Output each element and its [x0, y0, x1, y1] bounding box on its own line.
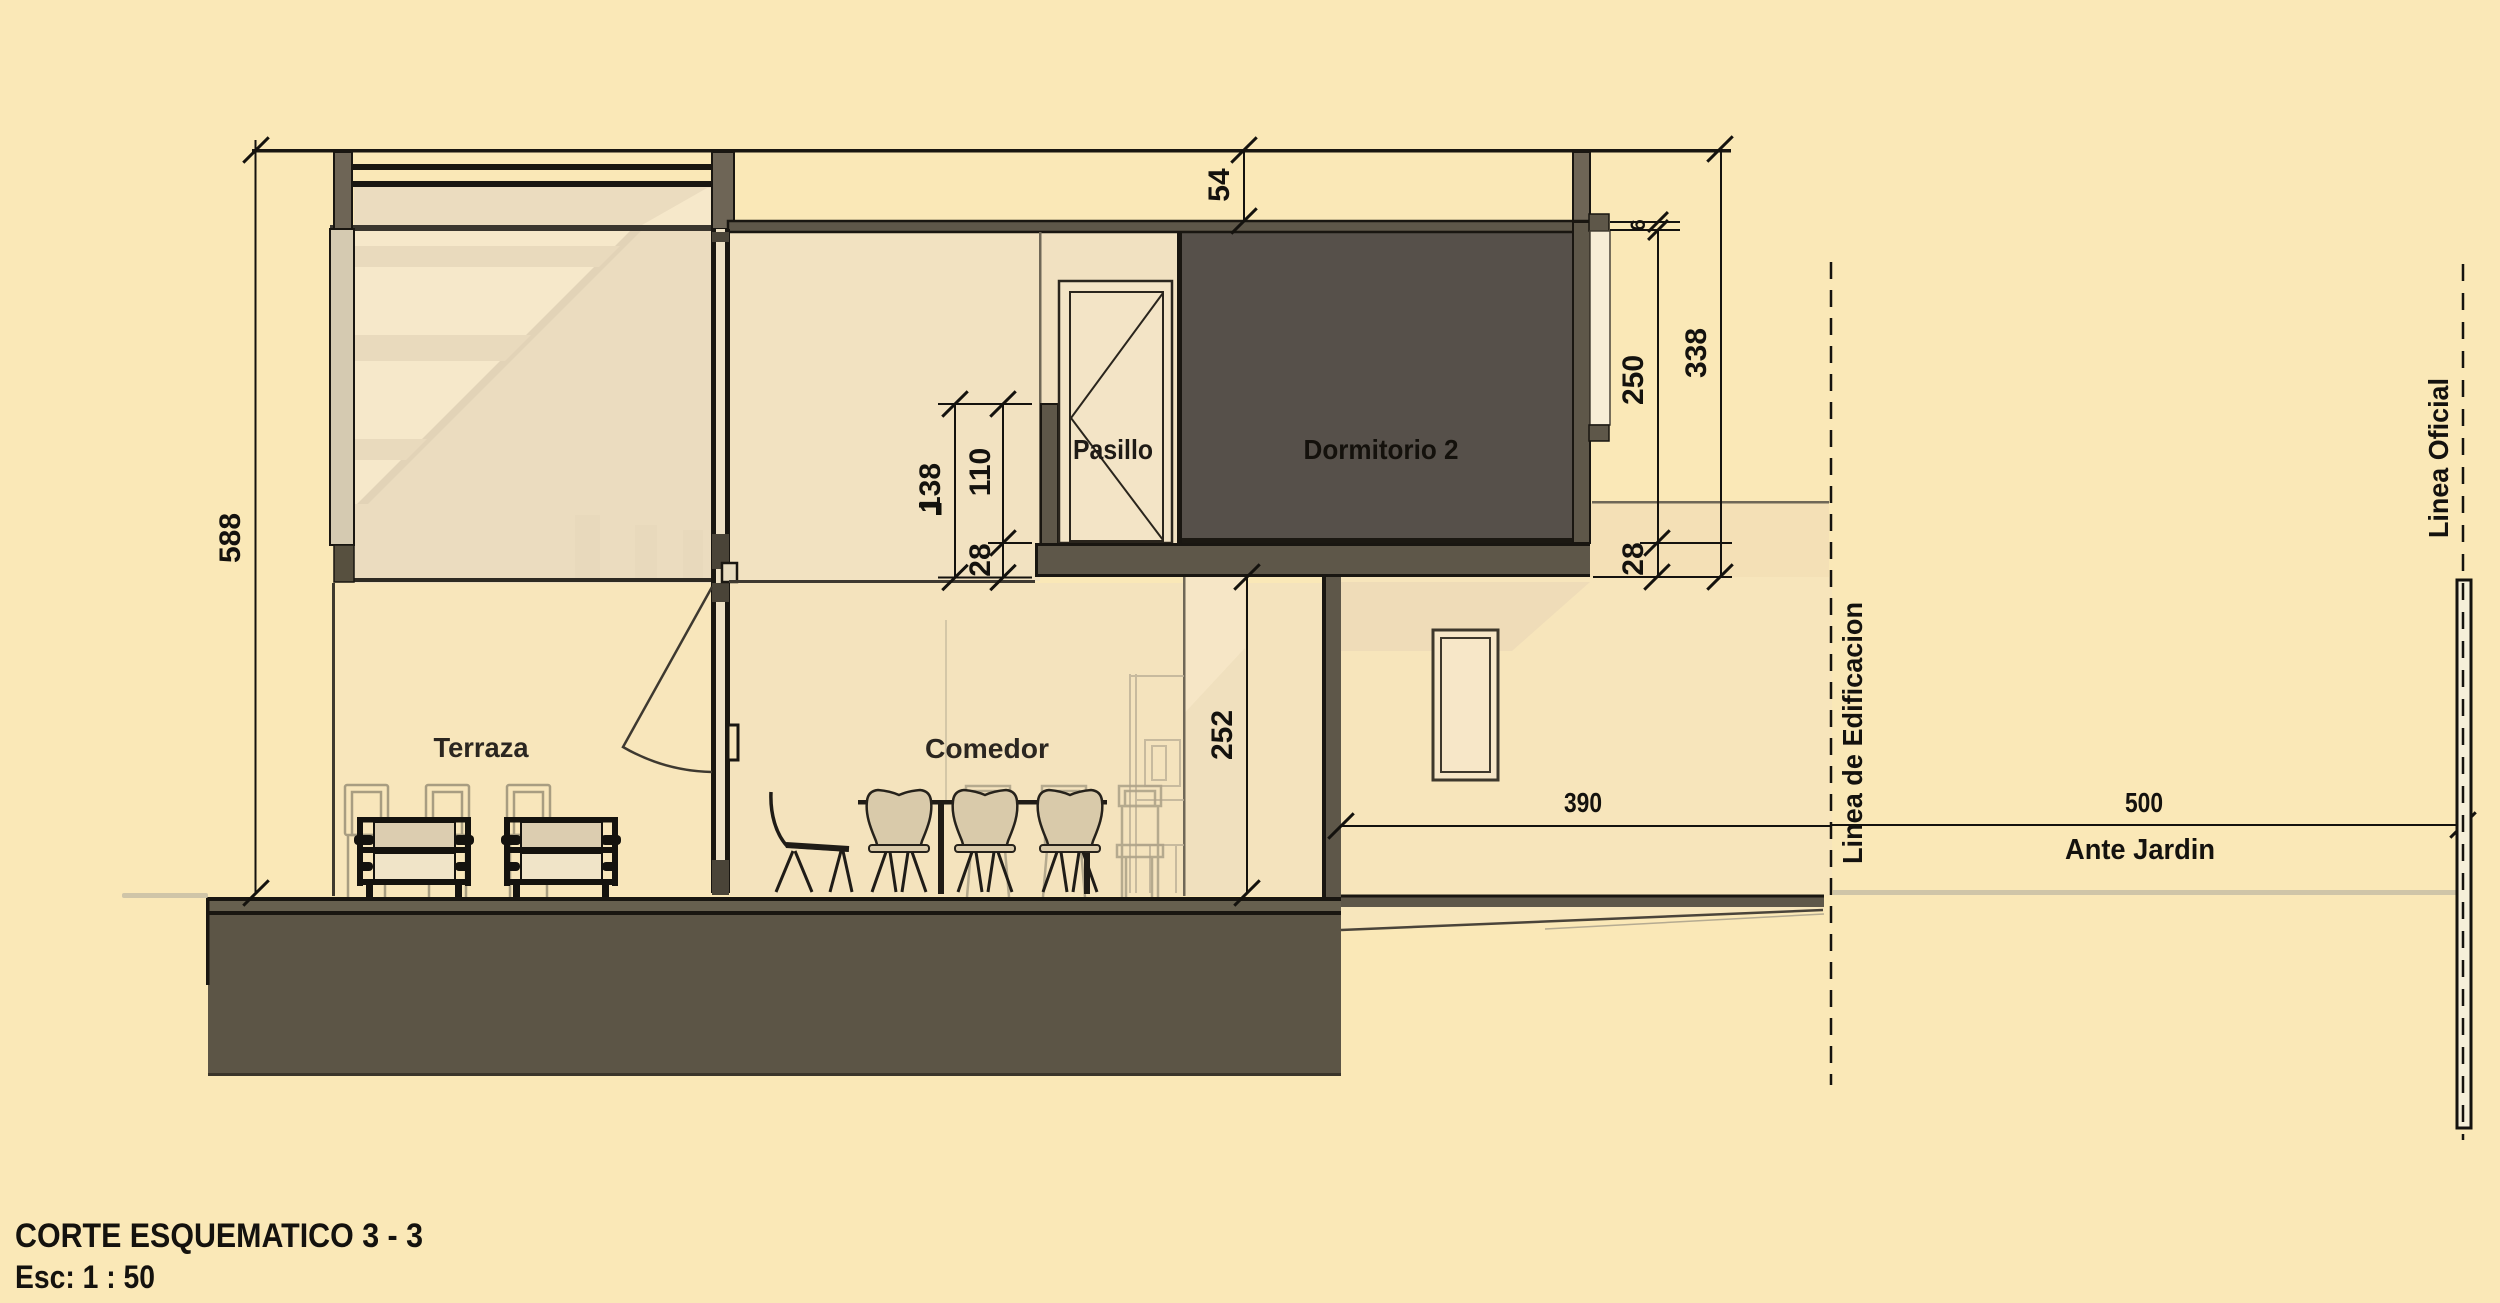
svg-text:54: 54	[1203, 168, 1236, 202]
svg-text:Pasillo: Pasillo	[1073, 434, 1153, 465]
svg-text:28: 28	[1617, 542, 1650, 575]
svg-text:28: 28	[964, 543, 997, 576]
svg-text:Esc: 1 : 50: Esc: 1 : 50	[15, 1259, 155, 1295]
svg-text:500: 500	[2125, 787, 2163, 818]
svg-text:Comedor: Comedor	[925, 733, 1049, 764]
svg-text:Dormitorio 2: Dormitorio 2	[1304, 434, 1459, 465]
svg-text:Linea de Edificacion: Linea de Edificacion	[1837, 602, 1868, 864]
svg-text:6: 6	[1627, 219, 1650, 231]
svg-text:Terraza: Terraza	[434, 732, 529, 763]
svg-text:Ante Jardin: Ante Jardin	[2065, 834, 2215, 866]
svg-text:390: 390	[1564, 787, 1602, 818]
svg-text:250: 250	[1617, 355, 1650, 405]
svg-text:Linea Oficial: Linea Oficial	[2423, 378, 2454, 538]
svg-text:110: 110	[964, 448, 997, 496]
svg-text:588: 588	[214, 513, 247, 563]
svg-text:CORTE ESQUEMATICO 3 - 3: CORTE ESQUEMATICO 3 - 3	[15, 1217, 423, 1255]
svg-text:338: 338	[1680, 328, 1713, 378]
svg-text:252: 252	[1206, 710, 1239, 760]
svg-text:138: 138	[914, 463, 947, 513]
